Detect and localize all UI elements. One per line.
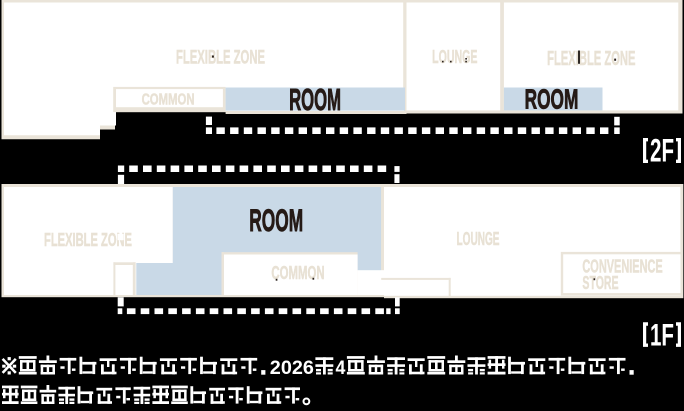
svg-text:ROOM: ROOM: [249, 202, 303, 238]
svg-text:FLEXIBLE ZONE: FLEXIBLE ZONE: [176, 46, 265, 68]
svg-text:ROOM: ROOM: [289, 84, 341, 117]
svg-text:ROOM: ROOM: [525, 83, 579, 114]
svg-text:LOUNGE: LOUNGE: [457, 229, 500, 249]
svg-text:COMMON: COMMON: [142, 92, 195, 109]
svg-text:4: 4: [336, 357, 346, 379]
svg-text:COMMON: COMMON: [271, 262, 324, 283]
svg-text:2026: 2026: [270, 357, 314, 379]
svg-text:FLEXIBLE ZONE: FLEXIBLE ZONE: [547, 48, 635, 70]
svg-text:2F: 2F: [650, 133, 674, 169]
svg-text:STORE: STORE: [582, 272, 618, 293]
svg-text:1F: 1F: [650, 317, 674, 352]
svg-text:LOUNGE: LOUNGE: [432, 47, 477, 67]
